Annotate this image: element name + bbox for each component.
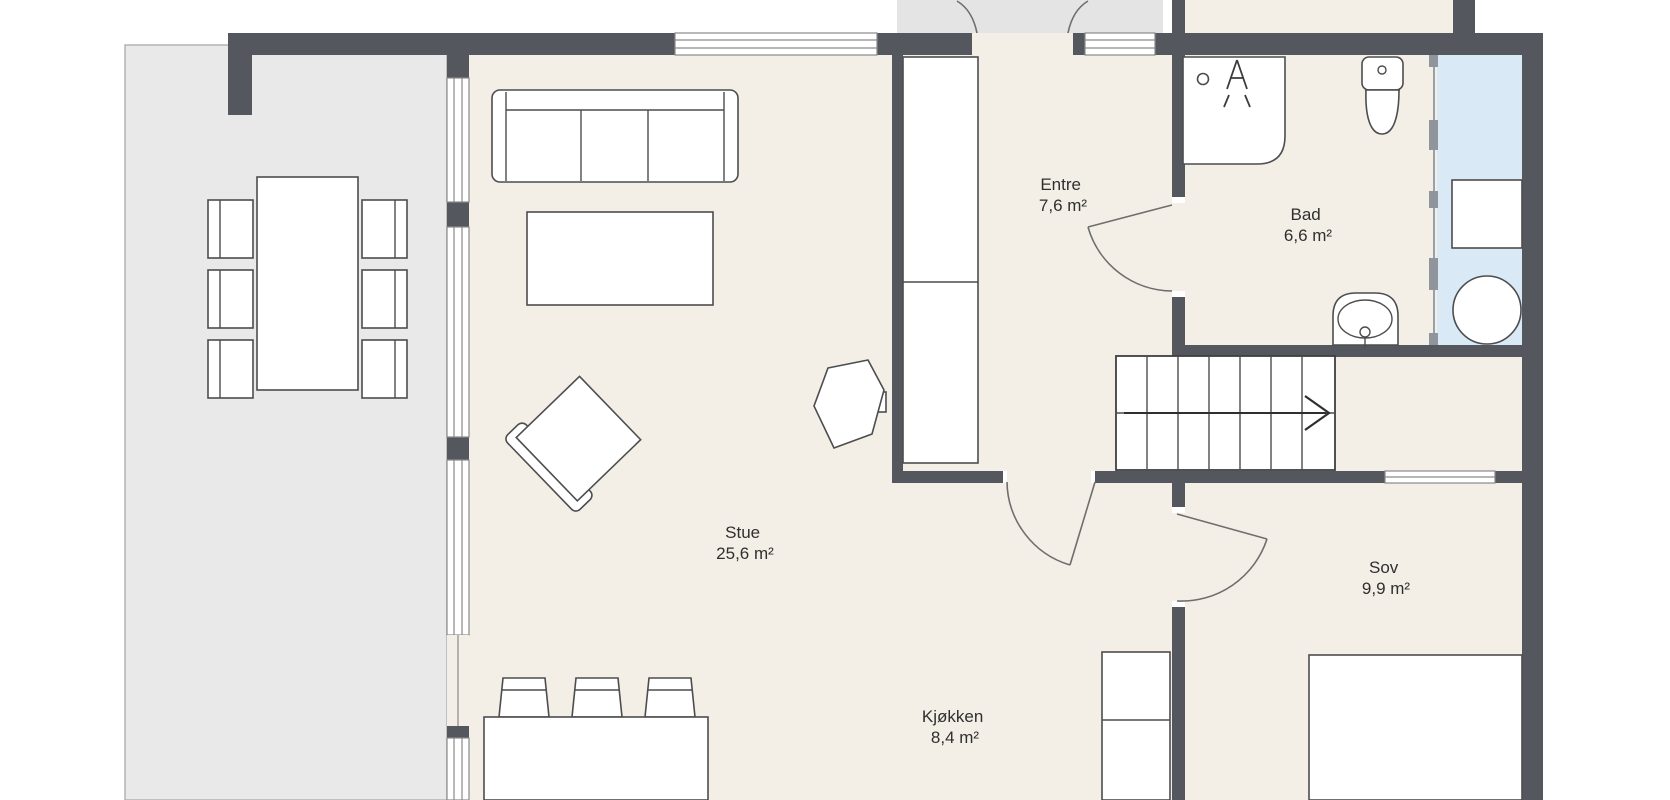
wall-top-entry-right: [1073, 33, 1085, 55]
wall-annex-stub: [1453, 0, 1475, 33]
wall-terrace-leg: [228, 33, 252, 115]
wall-top-entry-left: [877, 33, 972, 55]
window-entry: [1085, 33, 1155, 55]
bed: [1309, 655, 1522, 800]
cap: [1172, 291, 1185, 297]
cap: [1172, 507, 1185, 513]
bath-bench: [1452, 180, 1522, 248]
window-sov-hall: [1385, 471, 1495, 483]
dining-chairs-left: [208, 200, 253, 398]
cap: [1172, 197, 1185, 203]
bar-stool: [645, 678, 695, 717]
sofa: [492, 90, 738, 182]
wall-hall-bottom-right: [1495, 471, 1522, 483]
dining-chairs-right: [362, 200, 407, 398]
bar-stools: [499, 678, 695, 717]
sink: [1333, 293, 1398, 348]
window-terrace-2: [447, 227, 469, 437]
cap: [1003, 471, 1007, 483]
bar-stool: [499, 678, 549, 717]
wall-entre-bad-lower: [1172, 291, 1185, 345]
wall-right: [1522, 33, 1543, 800]
wardrobe: [903, 57, 978, 463]
wall-top-left: [228, 33, 675, 55]
wall-left-a: [447, 55, 469, 78]
coffee-table: [527, 212, 713, 305]
wall-left-d: [447, 726, 469, 738]
sink-tap: [1360, 327, 1370, 337]
stairs: [1116, 356, 1335, 470]
wall-kjokken-sov: [1172, 601, 1185, 800]
upper-room-floor-sliver: [1183, 0, 1453, 33]
window-terrace-1: [447, 78, 469, 202]
wall-stue-entre: [892, 55, 903, 482]
wall-left-c: [447, 437, 469, 460]
water-heater: [1453, 276, 1521, 344]
wall-hall-bottom-mid: [1095, 471, 1385, 483]
bar-stool: [572, 678, 622, 717]
window-terrace-3: [447, 460, 469, 635]
kitchen-cabinet: [1102, 652, 1170, 800]
kitchen-island: [484, 717, 708, 800]
floor-plan-canvas: Stue 25,6 m² Kjøkken 8,4 m² Entre 7,6 m²…: [0, 0, 1670, 800]
terrace-door-threshold: [447, 635, 469, 726]
wall-top-right: [1183, 33, 1543, 55]
wall-hall-bottom-left: [892, 471, 1003, 483]
entrance-porch-floor: [897, 0, 1163, 33]
dining-table: [257, 177, 358, 390]
terrace-floor: [125, 45, 447, 800]
floor-plan: Stue 25,6 m² Kjøkken 8,4 m² Entre 7,6 m²…: [0, 0, 1670, 800]
dining-set: [208, 177, 407, 398]
window-stue-top: [675, 33, 877, 55]
wall-left-b: [447, 202, 469, 227]
window-terrace-4: [447, 738, 469, 800]
shower: [1183, 57, 1285, 164]
cap: [1091, 471, 1095, 483]
